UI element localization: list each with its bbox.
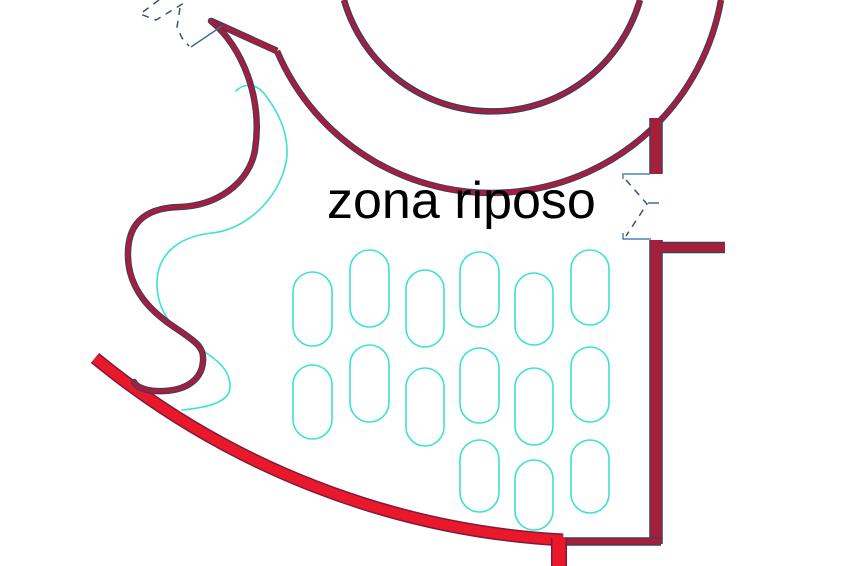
furniture-layer	[157, 85, 609, 530]
lounge-chair-8	[350, 345, 389, 422]
lounge-chair-1	[293, 272, 332, 346]
door-opening	[623, 174, 659, 239]
inner-arc-wall-edge	[344, 0, 640, 111]
lounge-chair-7	[293, 365, 332, 439]
wavy-wall	[128, 21, 257, 391]
lounge-chair-6	[571, 250, 609, 325]
break-zigzag-dash	[140, 0, 184, 20]
floor-plan-svg: zona riposo	[0, 0, 849, 566]
lounge-chair-14	[515, 460, 553, 530]
walls-layer	[211, 0, 725, 544]
red-band-arc	[95, 358, 563, 540]
lounge-chairs-group	[293, 250, 609, 530]
red-band-arc-edge	[95, 358, 563, 540]
lounge-chair-5	[515, 273, 553, 345]
lounge-chair-15	[571, 440, 609, 513]
lounge-chair-10	[460, 348, 499, 423]
lounge-chair-12	[571, 347, 609, 422]
lounge-chair-3	[406, 270, 444, 347]
break-drop-dash	[177, 8, 189, 46]
floor-plan-canvas: zona riposo	[0, 0, 849, 566]
apex-wall	[211, 21, 277, 51]
break-link-line	[191, 26, 222, 47]
lounge-chair-4	[460, 252, 499, 327]
door-jamb-top	[623, 174, 650, 179]
zone-label: zona riposo	[327, 172, 596, 230]
lounge-chair-9	[406, 368, 444, 446]
lounge-chair-2	[350, 250, 389, 327]
wavy-wall-layer	[128, 21, 257, 391]
wavy-wall-offset-curve	[157, 85, 287, 410]
lounge-chair-13	[460, 440, 499, 512]
lounge-chair-11	[515, 368, 553, 445]
door-swing-dash	[626, 180, 647, 236]
inner-arc-wall	[344, 0, 640, 111]
